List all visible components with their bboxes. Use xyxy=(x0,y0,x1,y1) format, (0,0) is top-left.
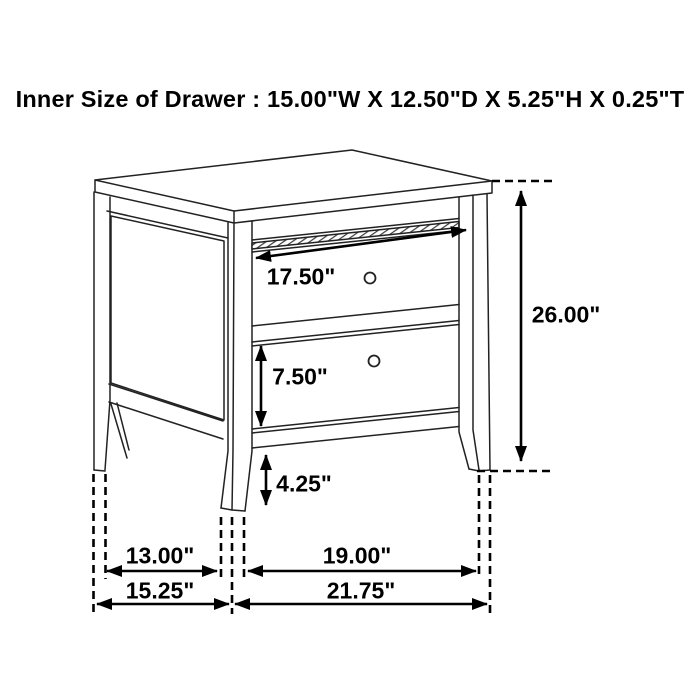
dim-label-bottom-drawer-height: 7.50" xyxy=(272,366,328,389)
dim-label-overall-depth: 15.25" xyxy=(126,580,194,603)
front-left-leg xyxy=(221,221,252,511)
bottom-drawer-knob xyxy=(369,356,380,367)
furniture-dimension-diagram: Inner Size of Drawer : 15.00"W X 12.50"D… xyxy=(0,0,700,700)
front-frame xyxy=(252,219,459,449)
table-top xyxy=(95,150,492,223)
dim-label-overall-height: 26.00" xyxy=(532,304,600,327)
dim-label-leg-height: 4.25" xyxy=(276,473,332,496)
dim-label-front-leg-spacing: 19.00" xyxy=(323,545,391,568)
dim-label-drawer-width: 17.50" xyxy=(267,266,335,289)
top-drawer-knob xyxy=(365,273,376,284)
left-side-panel xyxy=(107,211,228,439)
dim-label-side-leg-spacing: 13.00" xyxy=(126,545,194,568)
diagram-title: Inner Size of Drawer : 15.00"W X 12.50"D… xyxy=(0,86,700,113)
nightstand-drawing xyxy=(94,150,492,511)
dim-label-overall-width: 21.75" xyxy=(327,580,395,603)
front-right-leg xyxy=(459,194,490,471)
